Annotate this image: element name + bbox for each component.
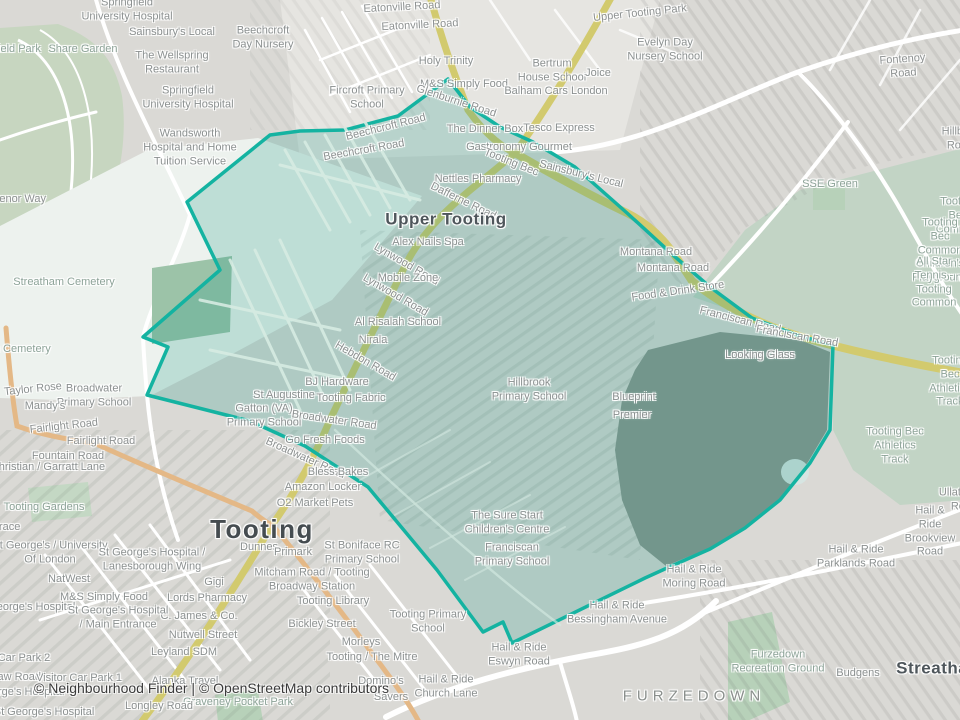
attribution: © Neighbourhood Finder | © OpenStreetMap… [34,680,389,696]
sse-green-area [813,188,845,210]
map-canvas[interactable]: Springfield University HospitalSainsbury… [0,0,960,720]
texture [700,560,960,720]
map-tiles [0,0,960,720]
